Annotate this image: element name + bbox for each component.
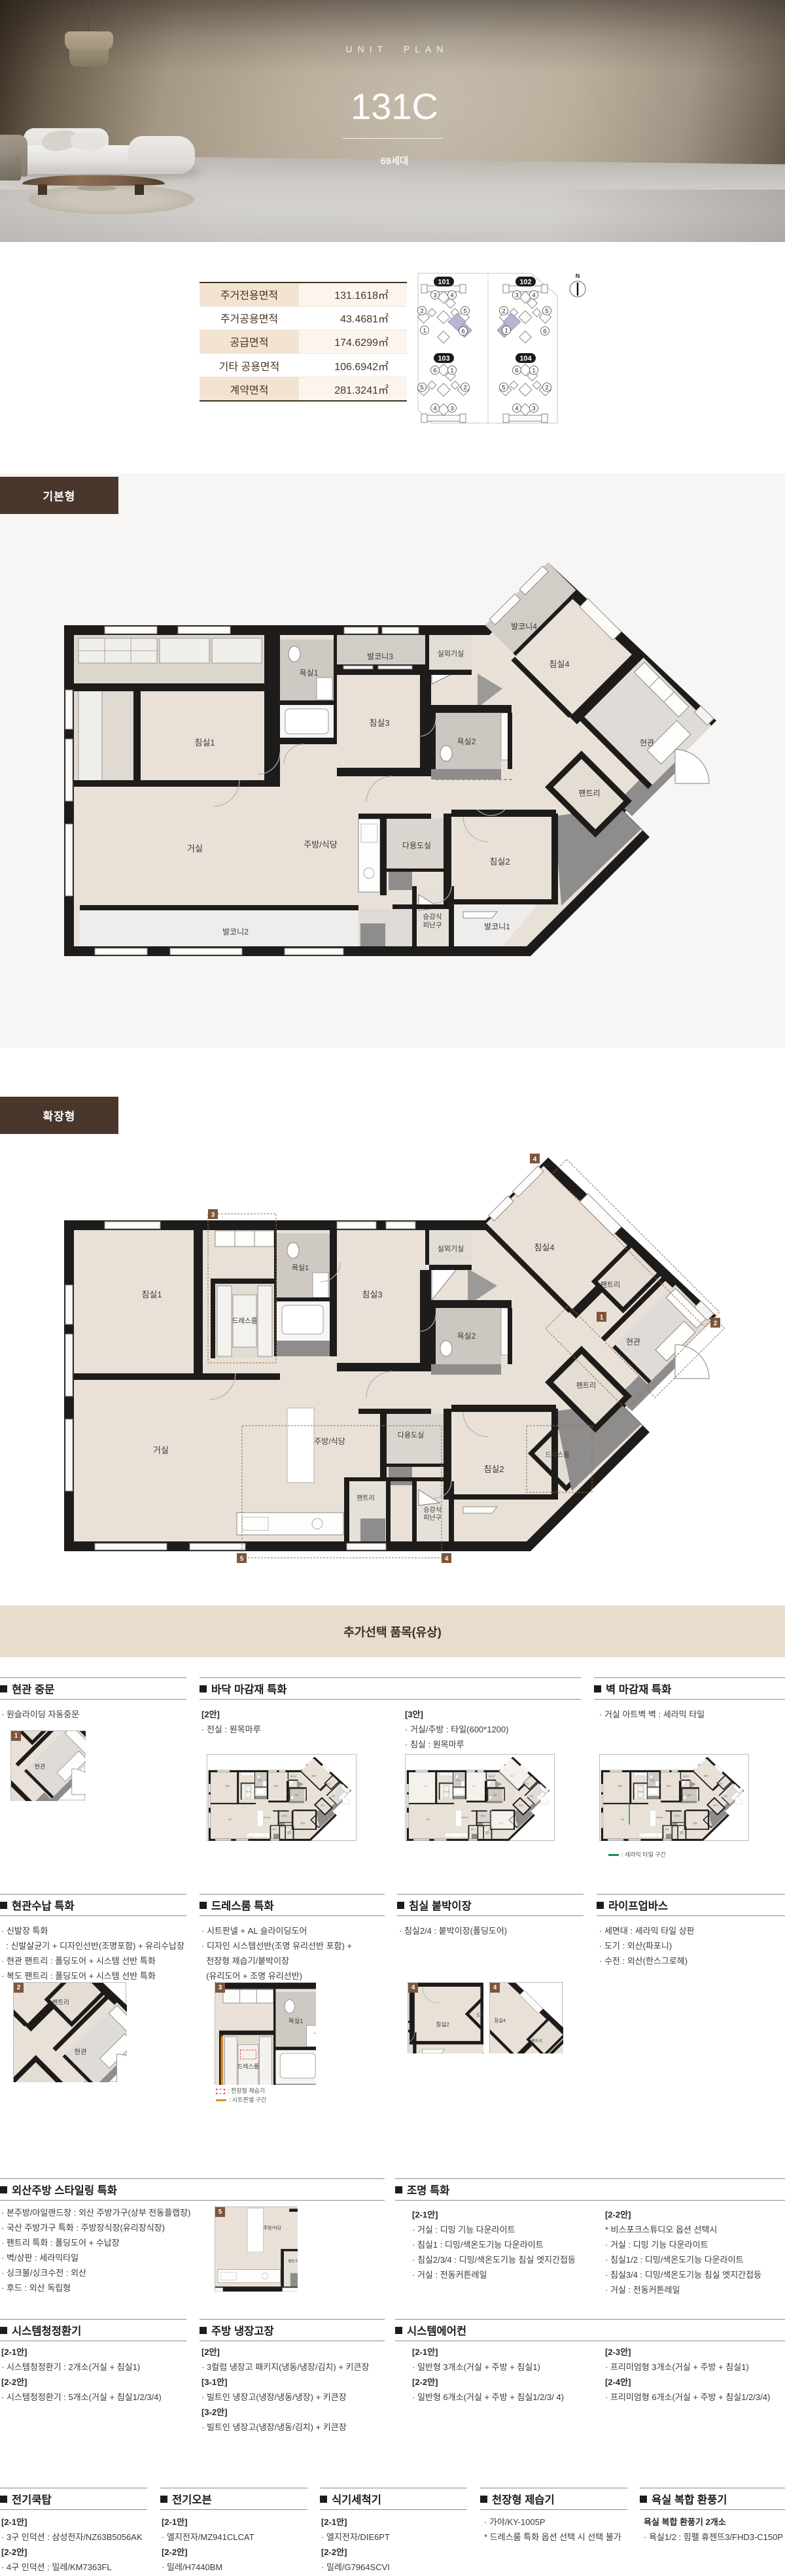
svg-text:2: 2 <box>463 385 466 392</box>
svg-text:4: 4 <box>533 1156 537 1163</box>
svg-text:3: 3 <box>211 1212 215 1219</box>
svg-text:3: 3 <box>532 405 535 413</box>
svg-text:발코니2: 발코니2 <box>222 927 249 936</box>
svg-text:2: 2 <box>420 308 423 315</box>
svg-text:1: 1 <box>423 328 426 335</box>
svg-text:욕실1: 욕실1 <box>300 668 319 678</box>
svg-text:3: 3 <box>515 292 518 300</box>
svg-text:4: 4 <box>532 292 535 300</box>
svg-text:2: 2 <box>502 308 505 315</box>
svg-text:다용도실: 다용도실 <box>402 841 431 850</box>
svg-text:1: 1 <box>504 328 508 335</box>
svg-text:2: 2 <box>714 1320 718 1328</box>
svg-text:현관: 현관 <box>640 738 654 747</box>
svg-text:승강식: 승강식 <box>423 913 442 921</box>
svg-text:103: 103 <box>438 355 449 363</box>
svg-text:발코니4: 발코니4 <box>511 622 537 631</box>
svg-text:N: N <box>576 273 580 279</box>
svg-text:5: 5 <box>420 385 423 392</box>
svg-text:6: 6 <box>543 328 546 335</box>
svg-text:발코니1: 발코니1 <box>484 922 510 931</box>
svg-text:4: 4 <box>433 405 436 413</box>
svg-text:102: 102 <box>519 279 531 286</box>
svg-text:5: 5 <box>463 308 466 315</box>
svg-text:2: 2 <box>545 385 548 392</box>
svg-text:5: 5 <box>240 1556 244 1563</box>
svg-text:5: 5 <box>502 385 505 392</box>
svg-text:5: 5 <box>545 308 548 315</box>
svg-text:3: 3 <box>450 405 453 413</box>
svg-text:4: 4 <box>515 405 518 413</box>
svg-text:침실3: 침실3 <box>369 718 389 728</box>
svg-text:4: 4 <box>445 1556 449 1563</box>
svg-text:침실1: 침실1 <box>194 738 215 747</box>
svg-text:침실2: 침실2 <box>489 857 510 867</box>
svg-text:실외기실: 실외기실 <box>438 649 464 658</box>
svg-text:욕실2: 욕실2 <box>457 737 476 746</box>
svg-text:4: 4 <box>450 292 453 300</box>
svg-text:거실: 거실 <box>187 844 203 853</box>
svg-text:6: 6 <box>433 368 436 375</box>
svg-text:101: 101 <box>438 279 449 286</box>
svg-text:3: 3 <box>433 292 436 300</box>
svg-text:1: 1 <box>532 368 535 375</box>
svg-text:팬트리: 팬트리 <box>578 789 600 798</box>
svg-text:1: 1 <box>450 368 453 375</box>
svg-text:피난구: 피난구 <box>423 921 442 929</box>
svg-text:발코니3: 발코니3 <box>367 652 393 661</box>
svg-text:침실4: 침실4 <box>549 659 569 669</box>
svg-text:1: 1 <box>600 1314 604 1322</box>
svg-text:104: 104 <box>519 355 532 363</box>
svg-text:6: 6 <box>515 368 518 375</box>
svg-text:주방/식당: 주방/식당 <box>304 840 337 850</box>
svg-text:6: 6 <box>461 328 464 335</box>
